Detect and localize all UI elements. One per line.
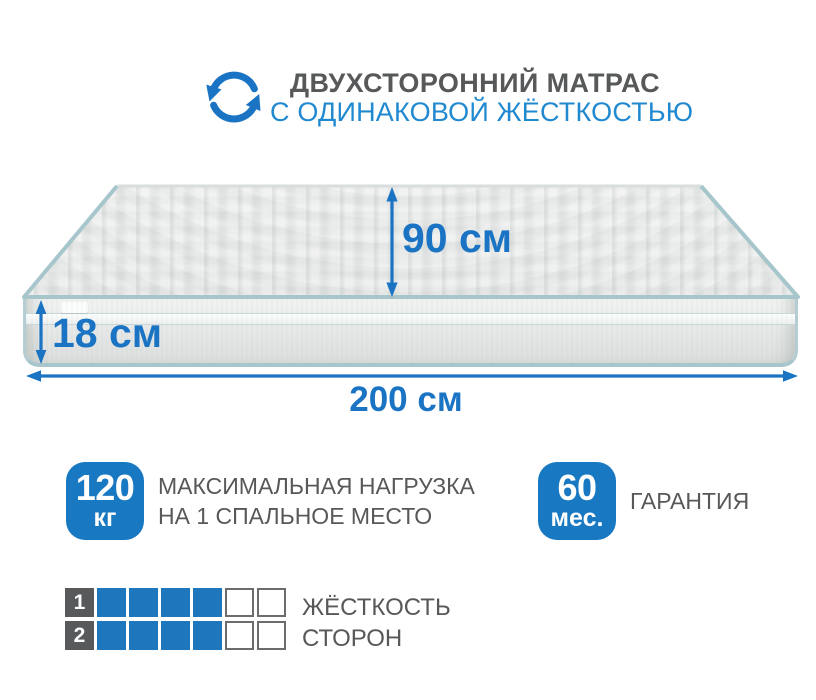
firmness-cell-filled [193, 588, 222, 617]
firmness-cell-filled [129, 588, 158, 617]
firmness-caption: ЖЁСТКОСТЬ СТОРОН [302, 592, 451, 654]
firmness-cell-filled [161, 588, 190, 617]
page-title: ДВУХСТОРОННИЙ МАТРАС [270, 68, 680, 98]
width-dimension-label: 200 см [300, 379, 512, 421]
max-load-value: 120 [76, 471, 135, 505]
rotate-arrows-icon [202, 64, 266, 130]
firmness-cell-filled [193, 621, 222, 650]
firmness-cell-empty [257, 588, 286, 617]
warranty-unit: мес. [551, 505, 604, 531]
firmness-rows: 12 [65, 588, 286, 650]
firmness-row: 1 [65, 588, 286, 617]
firmness-row-label: 2 [65, 621, 94, 650]
firmness-scale: 12 [65, 588, 286, 654]
max-load-unit: кг [94, 505, 117, 531]
height-dimension-label: 18 см [52, 311, 162, 355]
max-load-badge: 120 кг [66, 462, 144, 540]
max-load-label-line2: НА 1 СПАЛЬНОЕ МЕСТО [158, 501, 475, 531]
firmness-row-label: 1 [65, 588, 94, 617]
mattress-infographic: ДВУХСТОРОННИЙ МАТРАС С ОДИНАКОВОЙ ЖЁСТКО… [0, 0, 816, 700]
page-subtitle: С ОДИНАКОВОЙ ЖЁСТКОСТЬЮ [270, 98, 680, 127]
warranty-badge: 60 мес. [538, 462, 616, 540]
firmness-row: 2 [65, 621, 286, 650]
firmness-caption-line2: СТОРОН [302, 623, 451, 654]
warranty-value: 60 [557, 471, 596, 505]
firmness-cell-filled [129, 621, 158, 650]
firmness-cell-filled [97, 621, 126, 650]
warranty-label: ГАРАНТИЯ [630, 462, 749, 540]
firmness-cell-empty [225, 621, 254, 650]
max-load-label-line1: МАКСИМАЛЬНАЯ НАГРУЗКА [158, 471, 475, 501]
firmness-cell-filled [161, 621, 190, 650]
firmness-cell-empty [257, 621, 286, 650]
header: ДВУХСТОРОННИЙ МАТРАС С ОДИНАКОВОЙ ЖЁСТКО… [270, 68, 680, 127]
firmness-caption-line1: ЖЁСТКОСТЬ [302, 592, 451, 623]
max-load-label: МАКСИМАЛЬНАЯ НАГРУЗКА НА 1 СПАЛЬНОЕ МЕСТ… [158, 471, 475, 531]
firmness-cell-empty [225, 588, 254, 617]
depth-dimension-label: 90 см [402, 216, 512, 260]
firmness-cell-filled [97, 588, 126, 617]
